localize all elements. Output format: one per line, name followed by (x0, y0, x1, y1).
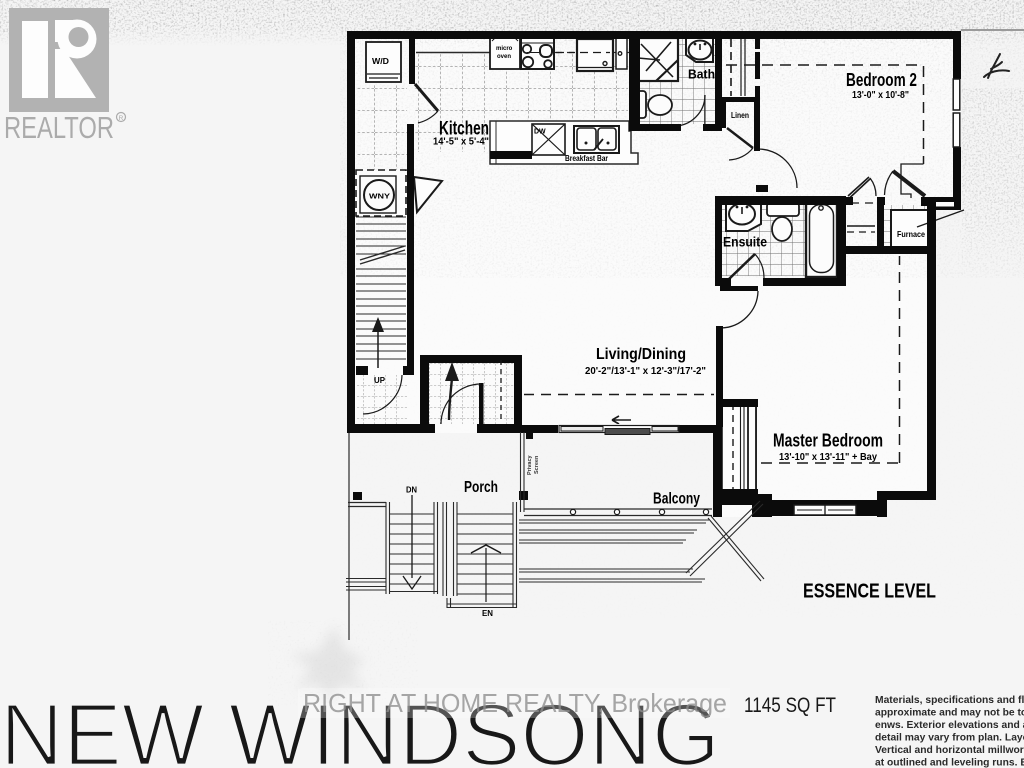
svg-text:Materials, specifications and: Materials, specifications and flo (875, 695, 1024, 706)
svg-text:13'-10" x 13'-11" + Bay: 13'-10" x 13'-11" + Bay (779, 451, 877, 463)
svg-text:13'-0" x 10'-8": 13'-0" x 10'-8" (852, 89, 909, 101)
svg-text:enws. Exterior elevations and: enws. Exterior elevations and art (875, 720, 1024, 731)
svg-text:REALTOR: REALTOR (4, 110, 114, 145)
svg-text:EN: EN (482, 608, 493, 618)
svg-text:detail may vary from plan. Lay: detail may vary from plan. Layo (875, 733, 1024, 744)
svg-text:Screen: Screen (534, 455, 540, 474)
svg-text:DW: DW (534, 129, 546, 136)
svg-text:Bedroom 2: Bedroom 2 (846, 70, 917, 90)
svg-text:Porch: Porch (464, 479, 498, 496)
svg-text:at outlined and leveling runs.: at outlined and leveling runs. E. I (875, 758, 1024, 768)
svg-text:14'-5" x 5'-4": 14'-5" x 5'-4" (433, 136, 489, 148)
svg-text:Breakfast Bar: Breakfast Bar (565, 154, 608, 163)
svg-text:Privacy: Privacy (527, 454, 533, 475)
svg-text:RIGHT AT HOME REALTY, Brokerag: RIGHT AT HOME REALTY, Brokerage (303, 688, 727, 718)
svg-text:Linen: Linen (731, 111, 749, 120)
svg-text:20'-2"/13'-1" x 12'-3"/17'-2": 20'-2"/13'-1" x 12'-3"/17'-2" (585, 365, 706, 377)
svg-text:Furnace: Furnace (897, 229, 925, 239)
svg-text:Master Bedroom: Master Bedroom (773, 430, 883, 451)
svg-text:Balcony: Balcony (653, 491, 700, 508)
svg-text:Bath: Bath (688, 68, 715, 82)
svg-text:Living/Dining: Living/Dining (596, 346, 686, 363)
svg-text:WNY: WNY (369, 192, 390, 201)
svg-text:Ensuite: Ensuite (723, 235, 767, 250)
svg-text:DN: DN (406, 486, 417, 495)
svg-text:oven: oven (497, 54, 511, 60)
svg-text:ESSENCE LEVEL: ESSENCE LEVEL (803, 581, 936, 603)
svg-text:UP: UP (374, 376, 386, 385)
svg-text:W/D: W/D (372, 57, 389, 66)
svg-text:Vertical and horizontal millwo: Vertical and horizontal millwork (875, 745, 1024, 756)
svg-text:R: R (119, 115, 124, 122)
svg-text:approximate and may not be to: approximate and may not be to (875, 708, 1024, 719)
svg-text:1145 SQ FT: 1145 SQ FT (744, 694, 836, 717)
svg-text:micro: micro (496, 46, 513, 52)
